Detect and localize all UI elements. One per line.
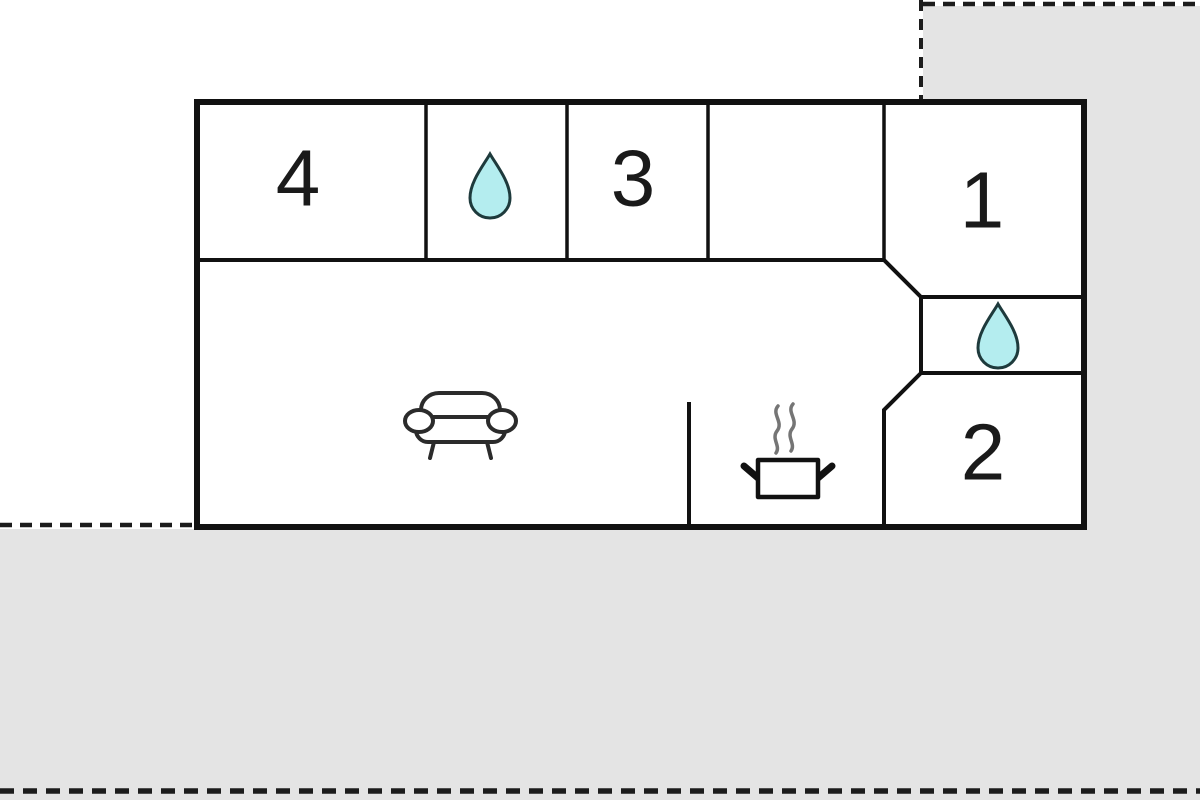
room-4-label: 4 xyxy=(276,134,321,223)
wall-top-row-bottom-and-room1 xyxy=(197,260,1084,297)
water-drop-shape xyxy=(470,154,510,218)
water-drop-icon xyxy=(978,304,1018,368)
water-drop-shape xyxy=(978,304,1018,368)
steam-line xyxy=(775,406,779,453)
steam-line xyxy=(790,404,794,451)
room-2-label: 2 xyxy=(961,408,1006,497)
sofa-legs xyxy=(430,442,491,458)
water-drop-icon xyxy=(470,154,510,218)
floor-plan-image: 4 3 1 2 xyxy=(0,0,1200,800)
steaming-pot-icon xyxy=(744,404,832,497)
wall-room2-left xyxy=(884,373,921,527)
room-1-label: 1 xyxy=(960,156,1005,245)
room-3-label: 3 xyxy=(611,134,656,223)
floor-plan-canvas: 4 3 1 2 xyxy=(0,0,1200,800)
sofa-icon xyxy=(405,393,516,458)
outside-area-bottom xyxy=(0,529,1200,800)
sofa-armrest-left xyxy=(405,410,433,432)
sofa-armrest-right xyxy=(488,410,516,432)
pot-body xyxy=(758,460,818,497)
